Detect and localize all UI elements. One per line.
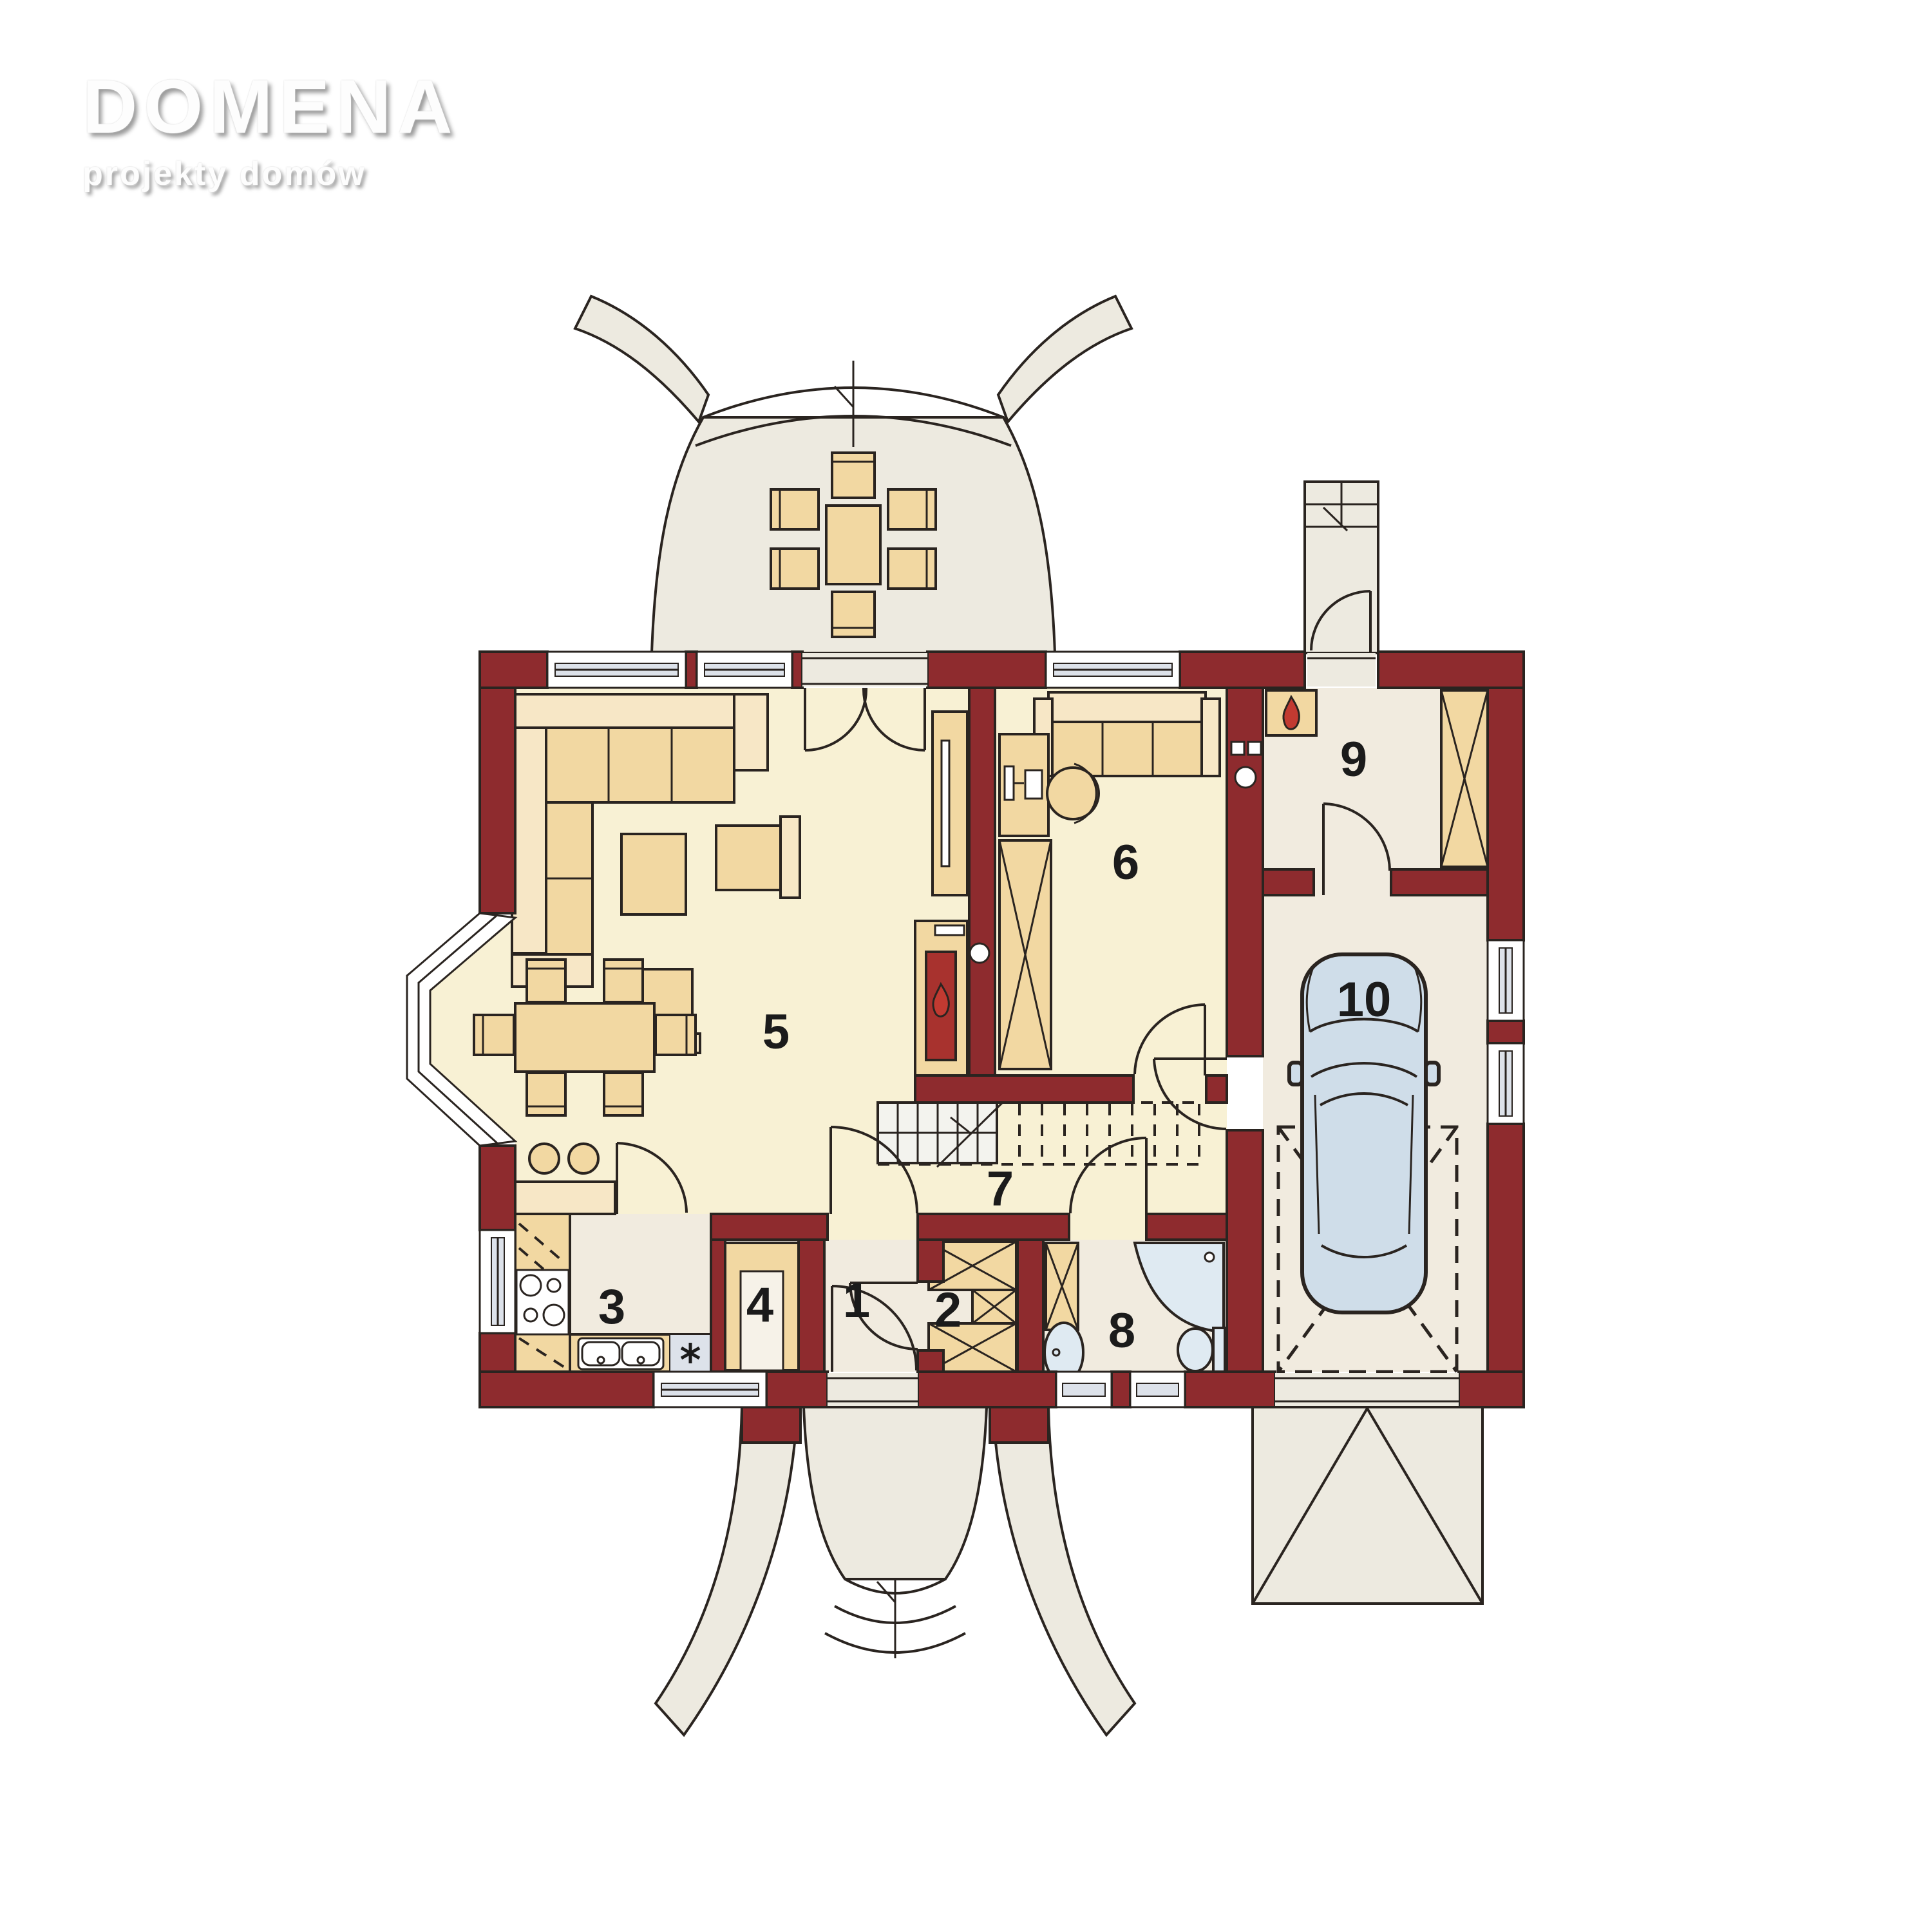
window-kitchen-bottom [654,1372,766,1407]
armchair-back [781,817,800,898]
entrance-platform [804,1407,987,1579]
office-sofa-back [1048,692,1206,722]
window-bath-bottom-1 [1056,1372,1112,1407]
flue-round-icon [1235,767,1256,788]
tv-panel [942,741,949,866]
sofa-back-top [512,694,734,728]
stove [516,1270,569,1334]
room-number-9: 9 [1340,732,1367,787]
fireplace [915,921,967,1075]
sofa-arm-right [734,694,768,770]
sofa-back-left [512,728,546,953]
coffee-table [621,834,686,914]
room-number-7: 7 [987,1162,1014,1217]
terrace-horn-left-icon [575,296,708,422]
flue-round-icon [970,943,989,963]
room-number-6: 6 [1112,835,1139,890]
window-living-top-2 [697,652,792,688]
car-mirror-icon [1289,1063,1302,1084]
window-bath-bottom-2 [1130,1372,1185,1407]
stool [529,1144,559,1173]
monitor-icon [1005,766,1014,800]
mantel-vent-icon [935,925,964,935]
room-number-5: 5 [762,1005,790,1059]
room-number-2: 2 [934,1283,961,1338]
flue-vent-icon [1231,742,1244,755]
window-living-top-1 [547,652,686,688]
stool [569,1144,598,1173]
terrace-horn-right-icon [998,296,1132,422]
window-garage-right-1 [1488,940,1524,1021]
armchair-seat [716,826,781,890]
floor-plan-drawing: 1 2 3 4 5 6 7 8 9 10 [0,0,1932,1932]
driveway-apron [1253,1407,1482,1604]
car-mirror-icon [1426,1063,1439,1084]
entrance-flank-right-icon [990,1407,1135,1735]
room-number-3: 3 [598,1280,625,1334]
garage-door [1275,1373,1459,1406]
terrace-tick [835,386,853,407]
window-garage-right-2 [1488,1043,1524,1124]
room-number-4: 4 [746,1278,773,1332]
toilet-bowl [1178,1329,1213,1371]
window-kitchen-left [480,1230,515,1333]
breakfast-bar [512,1182,615,1214]
sofa-seats-top [546,728,734,802]
dining-table [515,1003,654,1072]
floor-plan-page: DOMENA projekty domów [0,0,1932,1932]
room-number-10: 10 [1337,972,1392,1027]
entrance-flank-left-icon [656,1407,800,1735]
entrance-steps [656,1407,1135,1735]
flue-vent-icon [1248,742,1261,755]
patio-table [826,506,880,584]
window-office-top [1046,652,1180,688]
room-number-1: 1 [843,1273,870,1328]
toilet-tank [1213,1328,1225,1372]
room-number-8: 8 [1108,1303,1135,1358]
terrace-top [575,296,1132,653]
